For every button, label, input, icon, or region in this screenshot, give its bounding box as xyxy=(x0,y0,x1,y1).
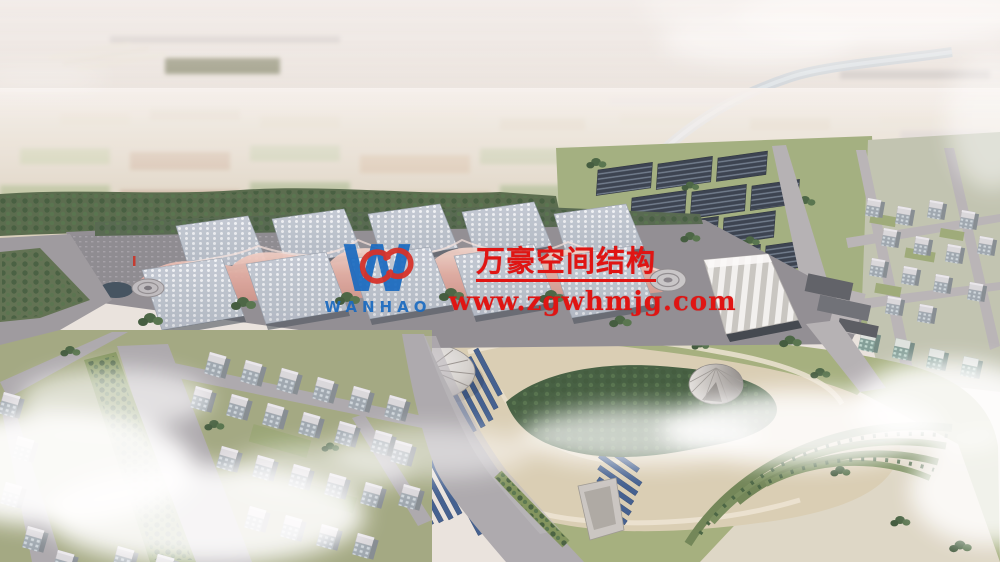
aerial-rendering-viewport: W WANHAO 万豪空间结构 www.zgwhmjg.com xyxy=(0,0,1000,562)
aerial-rendering-scene xyxy=(0,0,1000,562)
